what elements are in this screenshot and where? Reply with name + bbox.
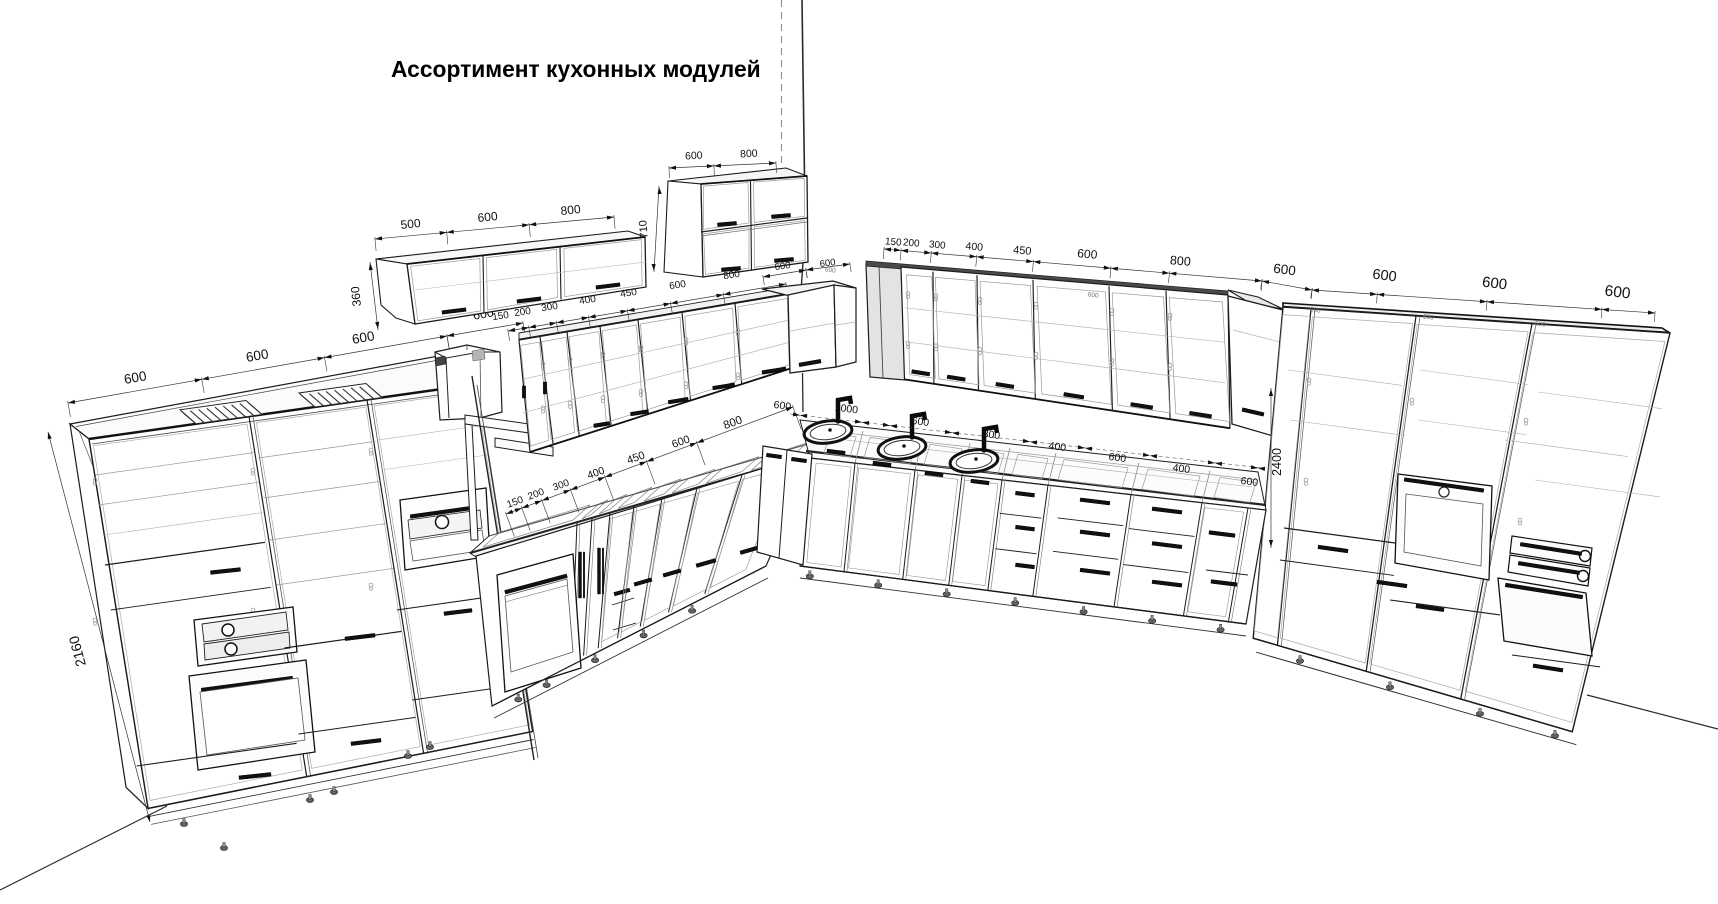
svg-text:800: 800	[982, 428, 1001, 442]
svg-text:710: 710	[637, 220, 651, 239]
svg-text:600: 600	[1481, 274, 1508, 294]
svg-text:600: 600	[1604, 283, 1632, 303]
svg-text:Ассортимент кухонных модулей: Ассортимент кухонных модулей	[391, 56, 761, 82]
svg-text:800: 800	[1169, 253, 1191, 269]
svg-text:360: 360	[348, 285, 364, 307]
svg-text:200: 200	[902, 237, 920, 249]
svg-text:600: 600	[773, 399, 792, 413]
svg-text:150: 150	[884, 236, 902, 248]
svg-text:600: 600	[1077, 246, 1098, 262]
svg-text:400: 400	[1172, 462, 1191, 476]
svg-text:400: 400	[1048, 440, 1067, 454]
svg-text:600: 600	[1272, 261, 1296, 279]
svg-text:500: 500	[400, 216, 422, 232]
svg-text:600: 600	[1240, 475, 1259, 489]
svg-text:300: 300	[928, 239, 946, 251]
svg-text:400: 400	[965, 240, 984, 253]
svg-text:2400: 2400	[1270, 448, 1284, 476]
svg-text:450: 450	[1013, 244, 1032, 258]
svg-text:600: 600	[1372, 267, 1398, 286]
svg-text:800: 800	[560, 202, 582, 218]
svg-text:600: 600	[477, 209, 499, 225]
svg-text:600: 600	[774, 260, 791, 273]
svg-text:600: 600	[685, 150, 703, 163]
svg-text:600: 600	[1108, 451, 1127, 465]
svg-text:800: 800	[740, 148, 758, 161]
svg-text:600: 600	[911, 415, 930, 429]
